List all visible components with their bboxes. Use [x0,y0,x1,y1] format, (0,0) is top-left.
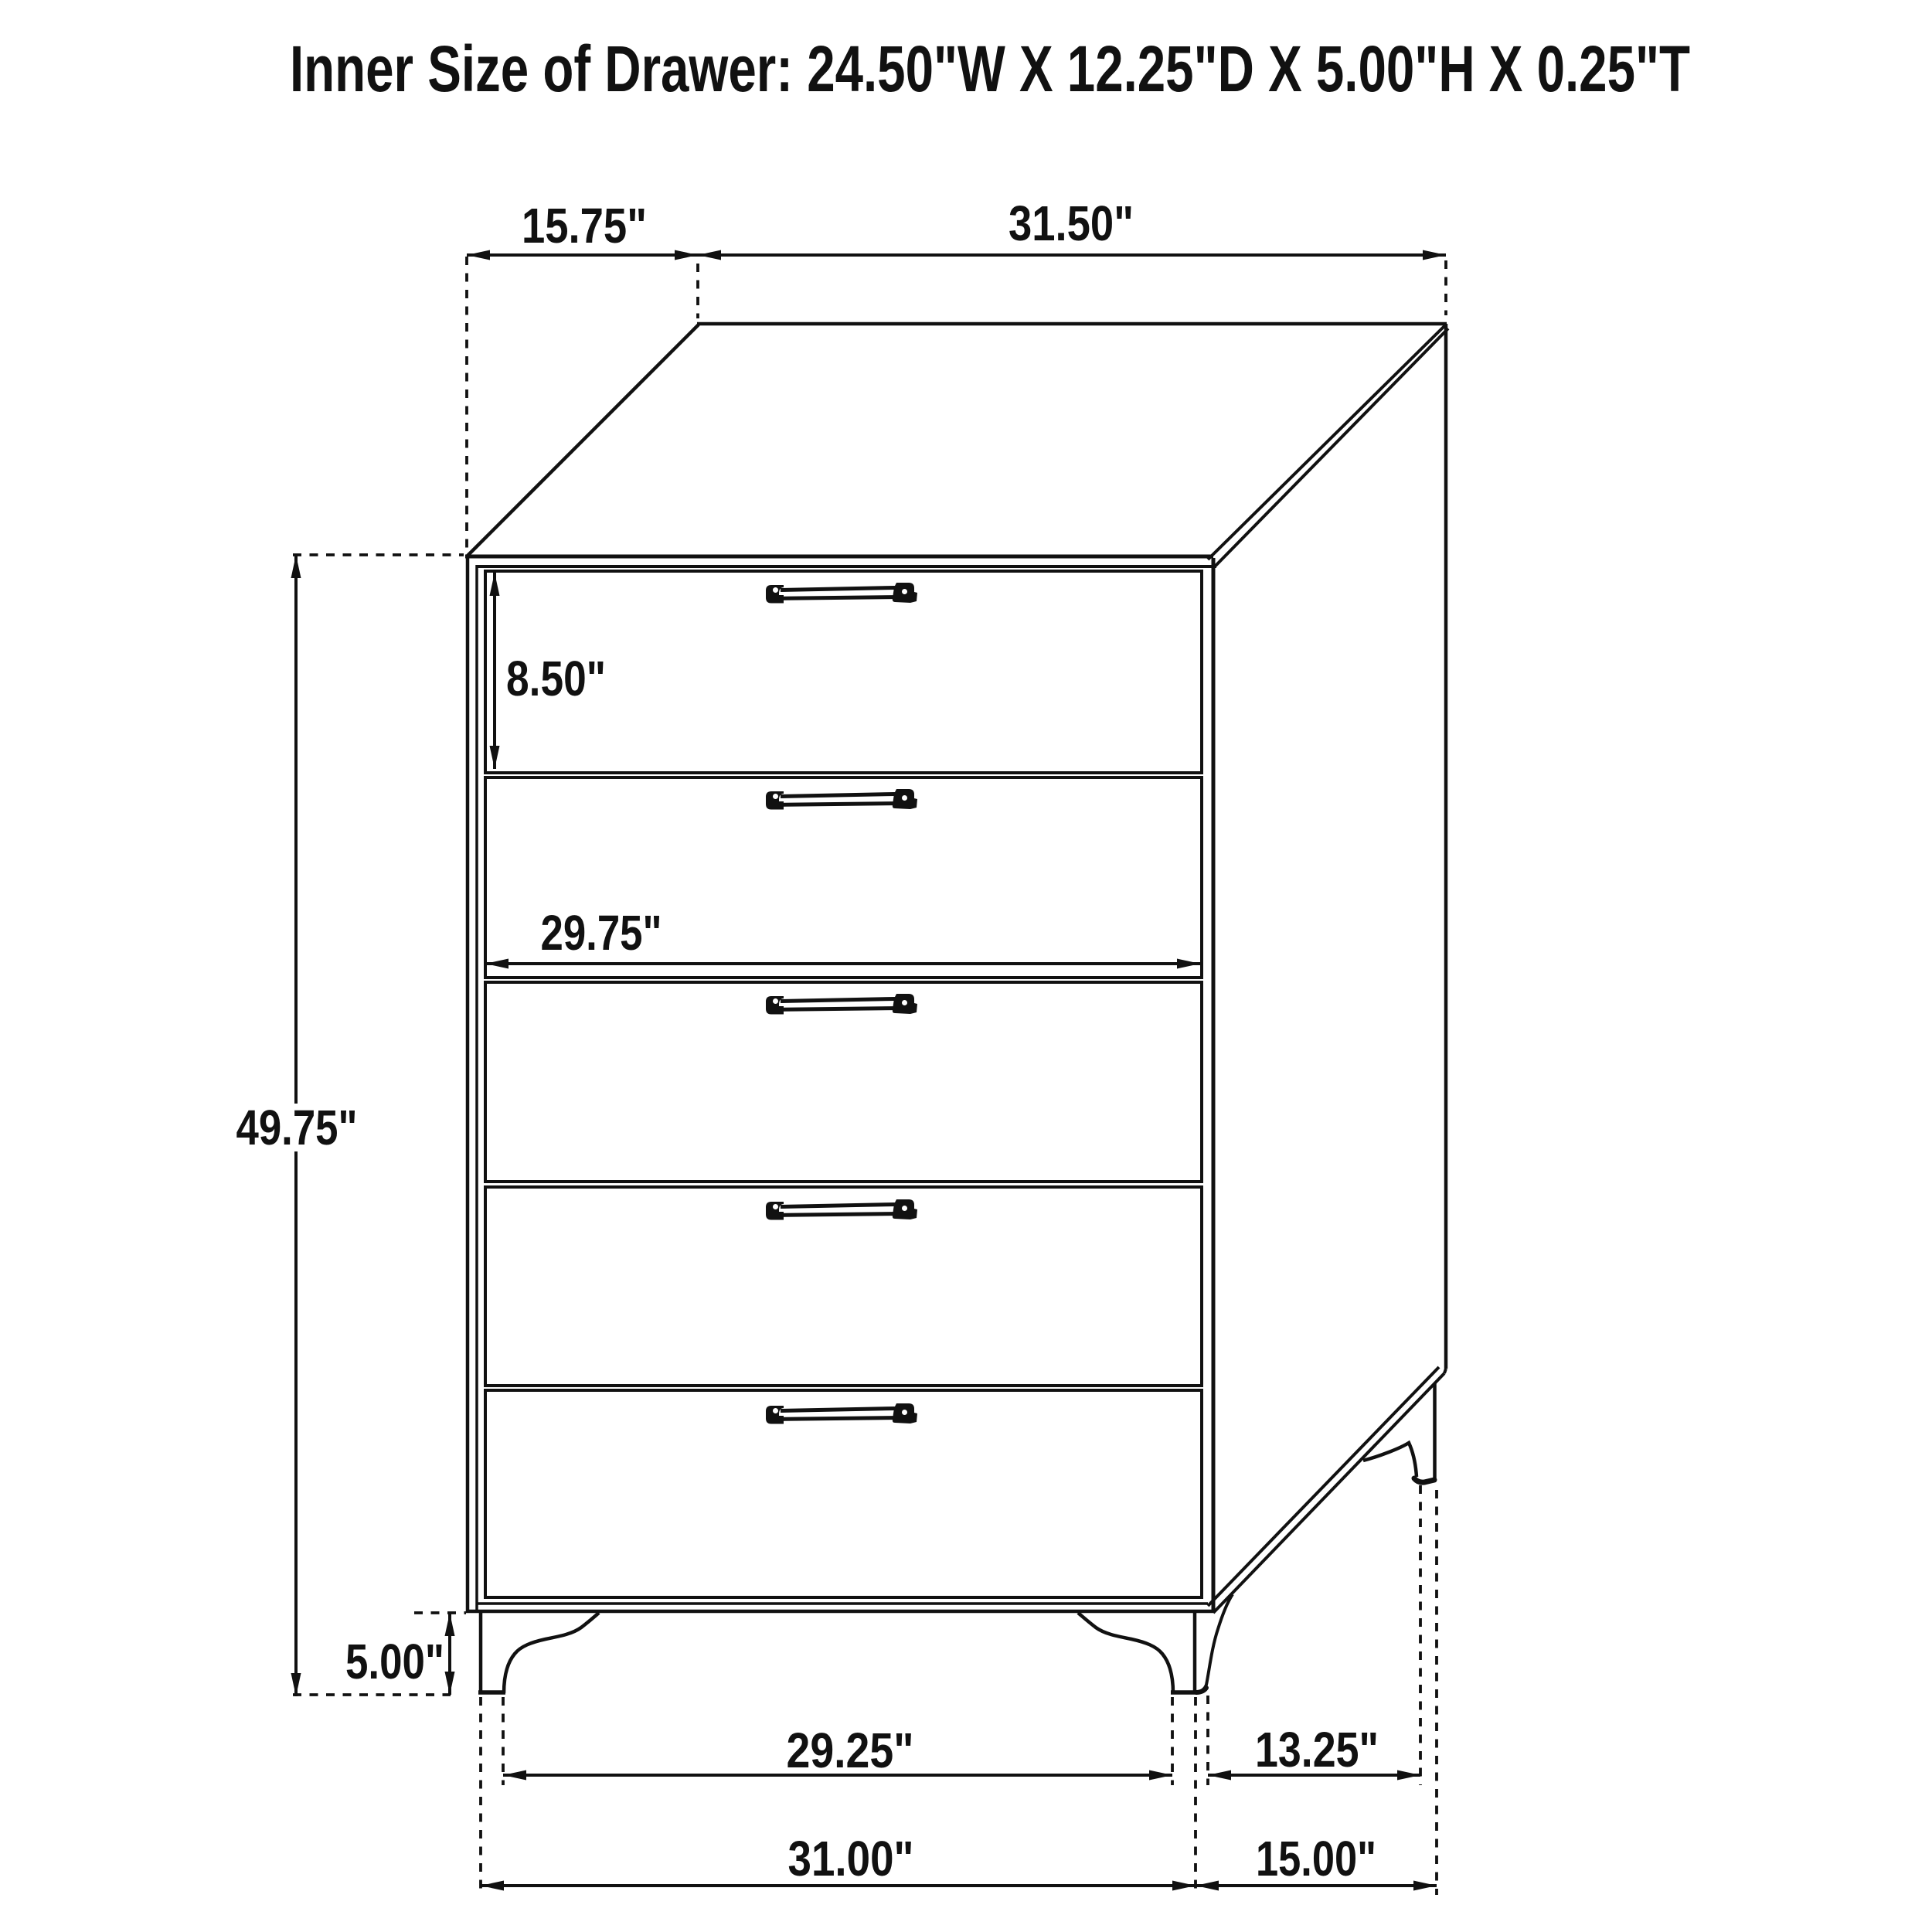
svg-text:8.50": 8.50" [506,651,606,706]
svg-text:13.25": 13.25" [1255,1722,1379,1777]
svg-text:49.75": 49.75" [236,1100,358,1155]
svg-text:31.00": 31.00" [788,1831,914,1886]
svg-text:15.75": 15.75" [522,198,647,253]
svg-text:5.00": 5.00" [345,1634,444,1689]
svg-text:31.50": 31.50" [1009,196,1134,251]
svg-text:15.00": 15.00" [1256,1831,1376,1886]
svg-text:29.25": 29.25" [787,1723,914,1778]
svg-text:29.75": 29.75" [541,905,662,961]
svg-text:Inner Size of Drawer: 24.50"W: Inner Size of Drawer: 24.50"W X 12.25"D … [290,32,1690,105]
